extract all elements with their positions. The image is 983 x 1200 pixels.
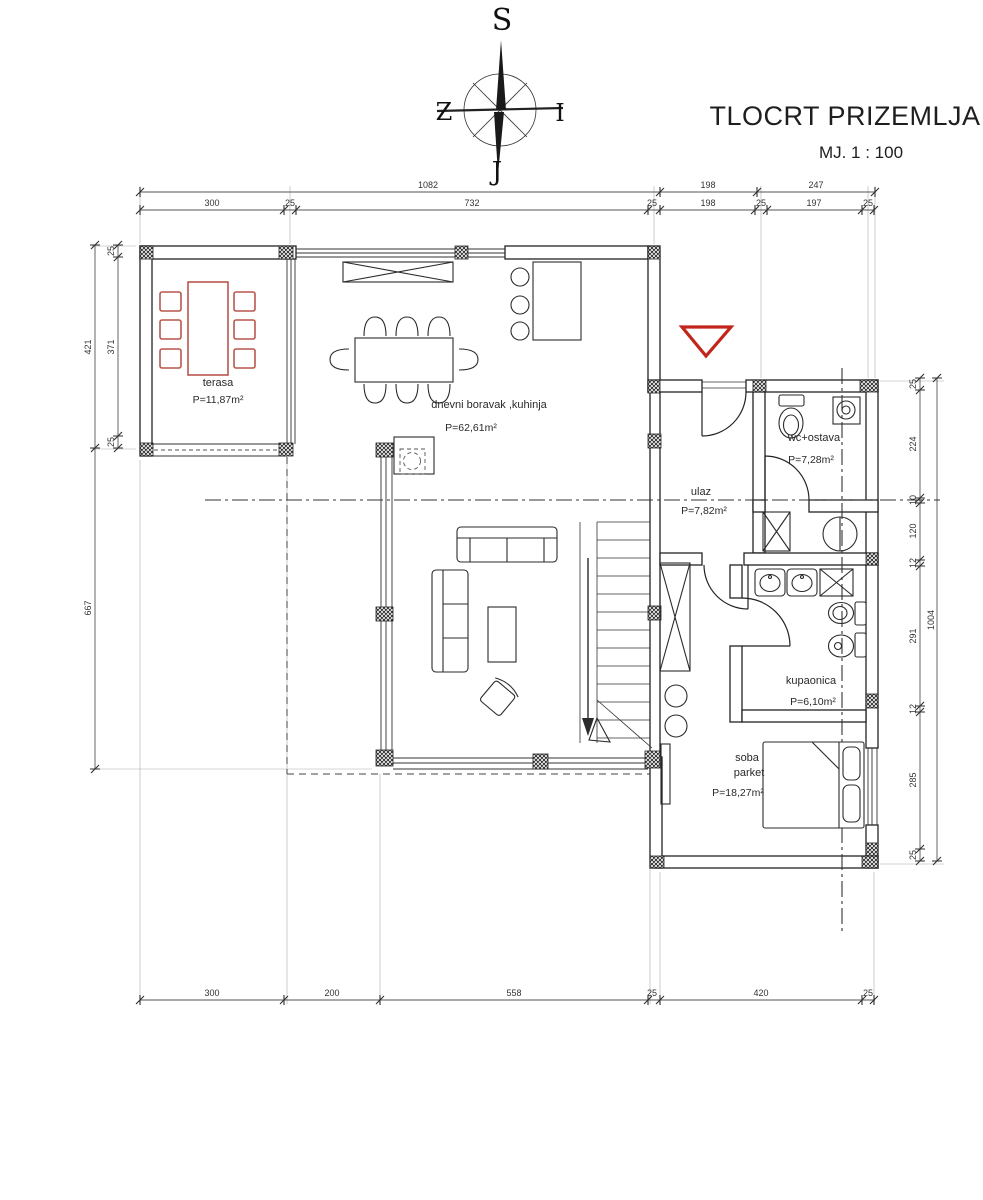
room-name-wc: wc+ostava xyxy=(787,432,841,444)
terrace-chair xyxy=(234,349,255,368)
dining-chair xyxy=(396,384,418,403)
bathroom-fixtures xyxy=(755,569,866,657)
compass-letter-right: I xyxy=(555,99,564,127)
bed xyxy=(763,742,864,828)
dim-label: 285 xyxy=(908,772,918,787)
room-name-soba: soba xyxy=(735,752,760,764)
armchair xyxy=(478,675,521,718)
dim-label: 25 xyxy=(647,988,657,998)
dim-label: 198 xyxy=(700,180,715,190)
dining-chair xyxy=(428,317,450,336)
washing-machine xyxy=(833,397,860,424)
room-area-dnevni: P=62,61m² xyxy=(445,422,497,434)
boiler xyxy=(823,517,857,551)
bedroom-furniture xyxy=(763,742,864,828)
dim-label: 1082 xyxy=(418,180,438,190)
terrace-chair xyxy=(160,292,181,311)
dim-label: 247 xyxy=(808,180,823,190)
entrance-marker-triangle xyxy=(682,327,731,356)
fireplace xyxy=(394,437,434,474)
dim-label: 224 xyxy=(908,436,918,451)
dim-label: 732 xyxy=(464,198,479,208)
kitchen-dining-furniture xyxy=(330,262,581,403)
kitchen-counter xyxy=(533,262,581,340)
room-area-wc: P=7,28m² xyxy=(788,454,834,466)
room-name-kupaonica: kupaonica xyxy=(786,675,837,687)
dimension-left: 421 667 25 371 25 xyxy=(83,241,123,773)
utility-circle xyxy=(665,715,687,737)
compass-letter-bottom: J xyxy=(489,157,502,187)
dim-label: 300 xyxy=(204,198,219,208)
dining-chair xyxy=(459,349,478,370)
dining-chair xyxy=(330,349,349,370)
vanity-sinks xyxy=(755,569,817,596)
coffee-table xyxy=(488,607,516,662)
dim-label: 25 xyxy=(106,246,116,256)
dim-label: 120 xyxy=(908,523,918,538)
dim-label: 25 xyxy=(647,198,657,208)
floor-plan-canvas: TLOCRT PRIZEMLJA MJ. 1 : 100 S Z I J 108… xyxy=(0,0,983,1200)
drawing-scale: MJ. 1 : 100 xyxy=(819,143,903,162)
staircase xyxy=(580,522,652,748)
dim-label: 291 xyxy=(908,628,918,643)
storage-cabinet-crossed xyxy=(763,512,790,551)
dining-chair xyxy=(364,317,386,336)
room-name-terasa: terasa xyxy=(203,377,234,389)
room-labels: terasa P=11,87m² dnevni boravak ,kuhinja… xyxy=(193,377,841,799)
compass-letter-top: S xyxy=(492,3,513,38)
dim-label: 12 xyxy=(908,704,918,714)
compass-letter-left: Z xyxy=(436,98,453,126)
terrace-chair xyxy=(234,320,255,339)
room-area-ulaz: P=7,82m² xyxy=(681,505,727,517)
dim-label: 25 xyxy=(863,198,873,208)
room-material-soba: parket xyxy=(734,767,765,779)
dim-label: 200 xyxy=(324,988,339,998)
stool xyxy=(511,296,529,314)
dining-chair xyxy=(364,384,386,403)
dim-label: 197 xyxy=(806,198,821,208)
living-room-furniture xyxy=(394,437,557,718)
window-sill-crossed xyxy=(343,262,453,282)
dim-label: 25 xyxy=(908,379,918,389)
dim-label: 1004 xyxy=(926,610,936,630)
sofa-three-seat xyxy=(457,527,557,562)
compass-rose: S Z I J xyxy=(436,3,565,187)
dim-label: 558 xyxy=(506,988,521,998)
utility-circle xyxy=(665,685,687,707)
dining-chair xyxy=(396,317,418,336)
stair-direction-arrow xyxy=(582,718,594,736)
dim-label: 198 xyxy=(700,198,715,208)
dim-label: 25 xyxy=(285,198,295,208)
dimension-right: 25 224 10 120 12 291 12 285 25 1004 xyxy=(908,374,942,865)
dim-label: 25 xyxy=(908,850,918,860)
dim-label: 420 xyxy=(753,988,768,998)
terrace-chair xyxy=(160,320,181,339)
terrace-table xyxy=(188,282,228,375)
dim-label: 421 xyxy=(83,339,93,354)
dimension-top: 1082 198 247 300 25 732 25 198 25 197 25 xyxy=(136,180,879,215)
drawing-title: TLOCRT PRIZEMLJA xyxy=(709,101,980,131)
sofa-two-seat xyxy=(432,570,468,672)
room-name-dnevni: dnevni boravak ,kuhinja xyxy=(431,399,547,411)
stool xyxy=(511,322,529,340)
room-area-kupaonica: P=6,10m² xyxy=(790,696,836,708)
dim-label: 667 xyxy=(83,600,93,615)
bidet xyxy=(829,633,867,657)
wardrobe-crossed xyxy=(660,563,690,671)
floor-plan-page: TLOCRT PRIZEMLJA MJ. 1 : 100 S Z I J 108… xyxy=(0,0,983,1200)
title-block: TLOCRT PRIZEMLJA MJ. 1 : 100 xyxy=(709,101,980,162)
terrace-chair xyxy=(160,349,181,368)
toilet xyxy=(829,602,867,625)
room-name-ulaz: ulaz xyxy=(691,486,711,498)
dim-label: 371 xyxy=(106,339,116,354)
bath-cabinet-crossed xyxy=(820,569,853,596)
room-area-terasa: P=11,87m² xyxy=(193,394,244,406)
terrace-chair xyxy=(234,292,255,311)
terrace-furniture xyxy=(160,282,255,375)
dining-table xyxy=(355,338,453,382)
compass-north-needle xyxy=(496,40,506,110)
room-area-soba: P=18,27m² xyxy=(712,787,764,799)
dim-label: 300 xyxy=(204,988,219,998)
dimension-bottom: 300 200 558 25 420 25 xyxy=(136,988,878,1005)
stool xyxy=(511,268,529,286)
dim-label: 25 xyxy=(863,988,873,998)
dim-label: 25 xyxy=(756,198,766,208)
dim-label: 25 xyxy=(106,437,116,447)
dim-label: 12 xyxy=(908,558,918,568)
